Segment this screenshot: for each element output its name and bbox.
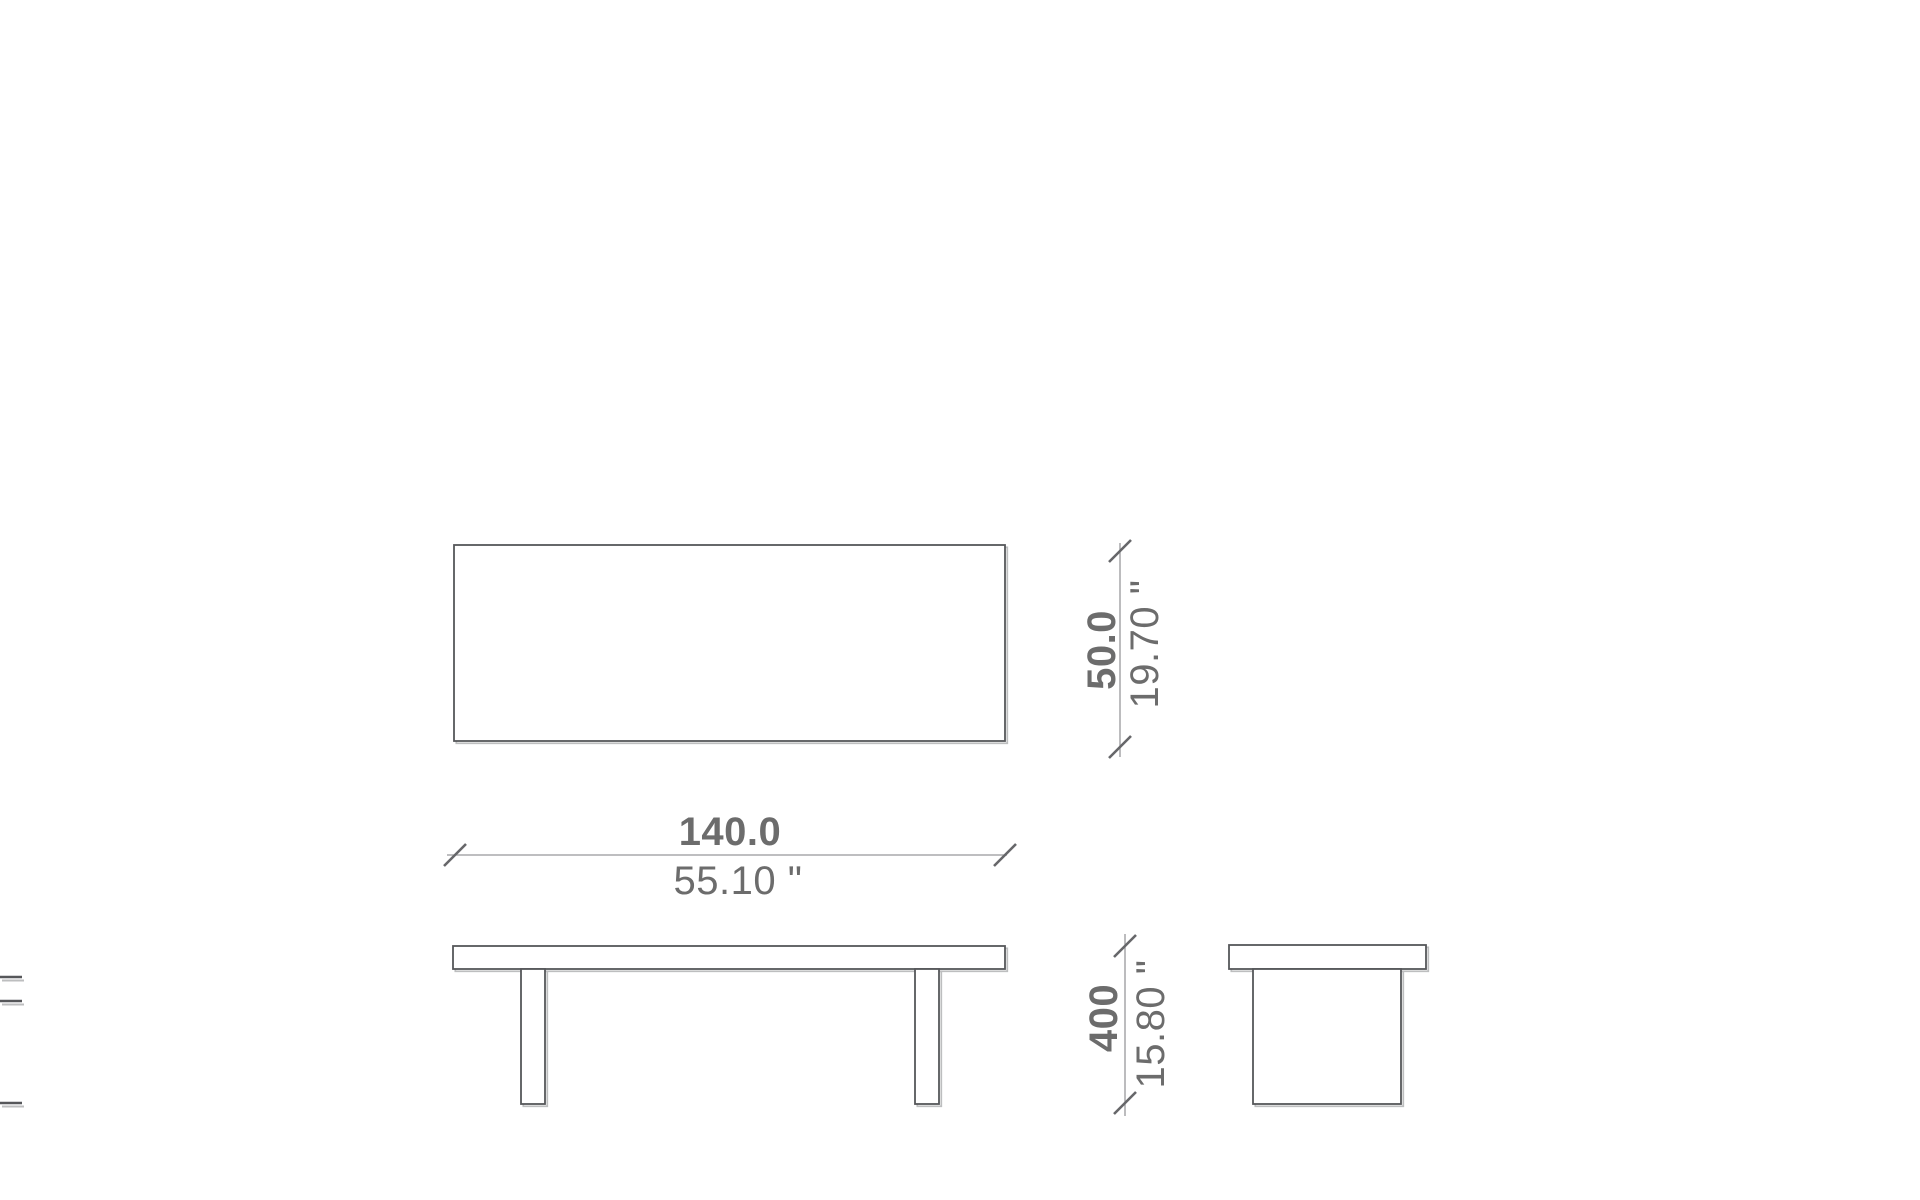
side-view <box>1229 945 1426 1104</box>
front-view-right-leg <box>915 969 939 1104</box>
width-imperial-label: 55.10 " <box>674 859 803 903</box>
width-dimension: 140.0 55.10 " <box>444 810 1016 903</box>
drawing-canvas: 50.0 19.70 " 140.0 55.10 " 400 15.80 " <box>0 0 1920 1200</box>
depth-dimension: 50.0 19.70 " <box>1080 540 1167 758</box>
top-view <box>454 545 1005 741</box>
front-view-left-leg <box>521 969 545 1104</box>
height-dimension: 400 15.80 " <box>1082 934 1173 1116</box>
cropped-view-fragment <box>0 977 24 1107</box>
height-imperial-label: 15.80 " <box>1129 960 1173 1089</box>
side-view-leg-panel <box>1253 969 1401 1104</box>
height-metric-label: 400 <box>1082 984 1126 1052</box>
depth-imperial-label: 19.70 " <box>1123 580 1167 709</box>
top-view-outline <box>454 545 1005 741</box>
front-view-top-panel <box>453 946 1005 969</box>
depth-metric-label: 50.0 <box>1080 610 1124 690</box>
technical-drawing: 50.0 19.70 " 140.0 55.10 " 400 15.80 " <box>0 0 1920 1200</box>
width-metric-label: 140.0 <box>679 810 782 854</box>
side-view-top-panel <box>1229 945 1426 969</box>
front-view <box>453 946 1005 1104</box>
